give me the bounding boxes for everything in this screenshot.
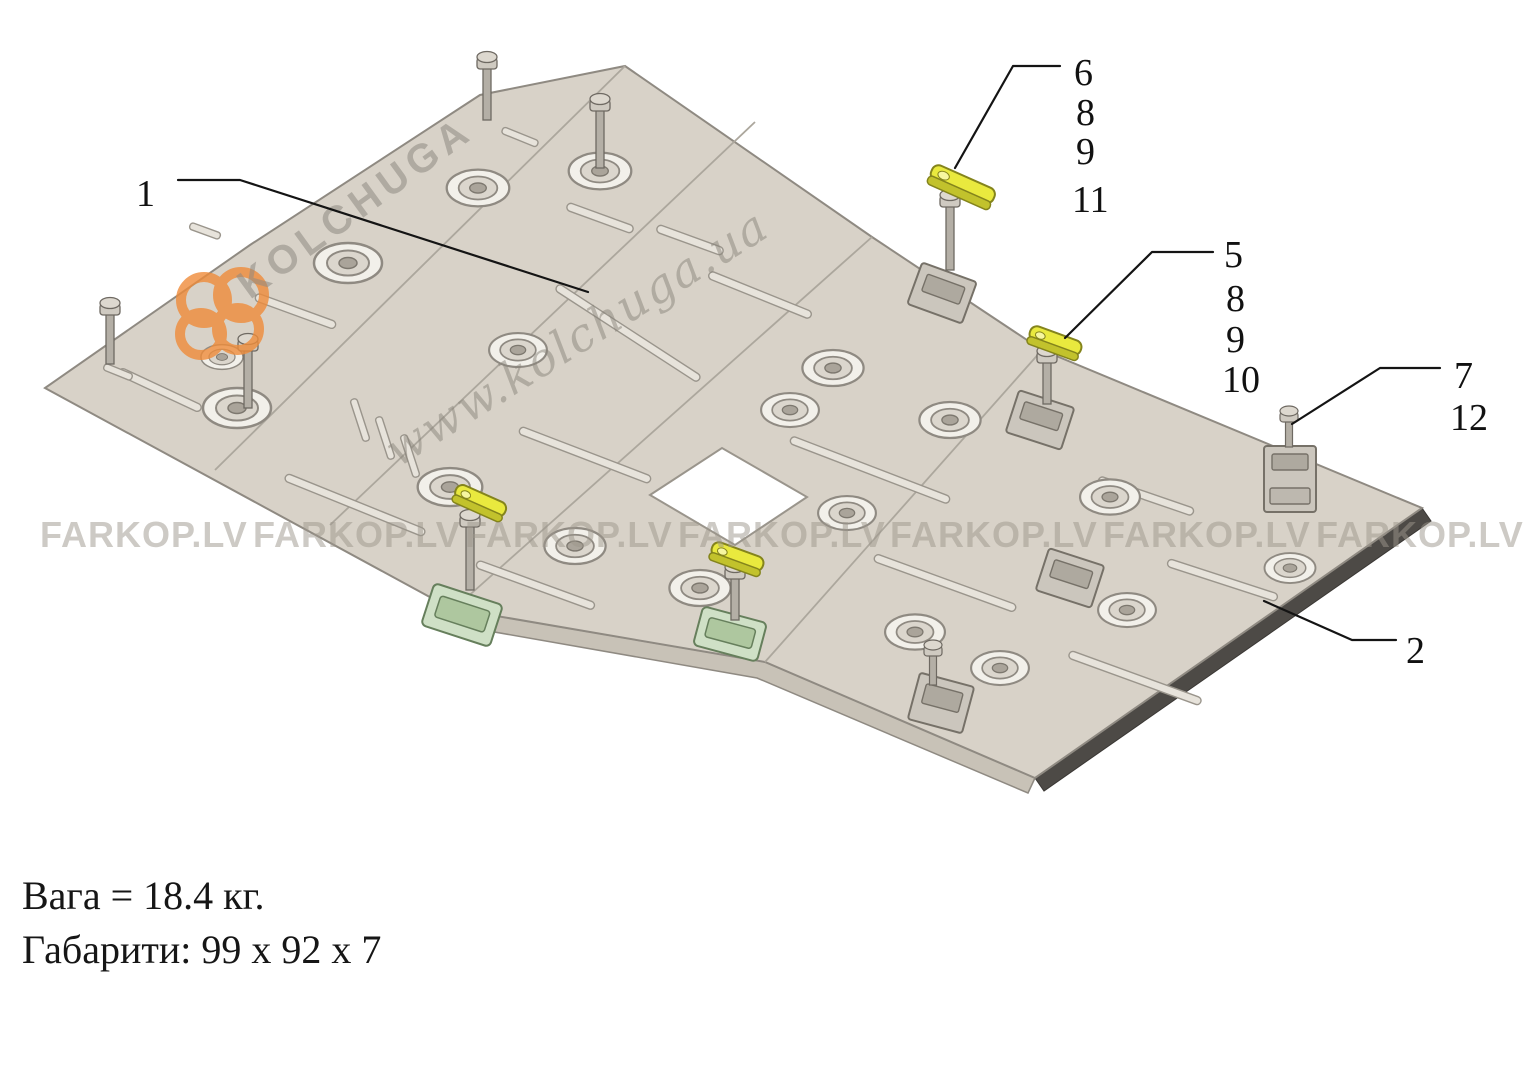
watermark-dealer: FARKOP.LV: [253, 514, 461, 555]
callout-6: 6: [1074, 52, 1093, 94]
watermark-dealer: FARKOP.LV: [1316, 514, 1524, 555]
watermark-dealer: FARKOP.LV: [40, 514, 248, 555]
callout-11: 11: [1072, 179, 1109, 221]
spec-dimensions: Габарити: 99 х 92 х 7: [22, 927, 381, 972]
watermark-dealer: FARKOP.LV: [890, 514, 1098, 555]
callout-7: 7: [1454, 355, 1473, 397]
diagram-page: KOLCHUGA www.kolchuga.ua FARKOP.LV FARKO…: [0, 0, 1524, 1080]
callout-10: 10: [1222, 359, 1260, 401]
callout-12: 12: [1450, 397, 1488, 439]
watermark-dealer: FARKOP.LV: [678, 514, 886, 555]
callout-9a: 9: [1076, 131, 1095, 173]
spec-weight: Вага = 18.4 кг.: [22, 873, 264, 918]
callout-2: 2: [1406, 630, 1425, 672]
callout-9b: 9: [1226, 319, 1245, 361]
metal-bracket: [1264, 446, 1316, 512]
callout-8b: 8: [1226, 278, 1245, 320]
callout-5: 5: [1224, 234, 1243, 276]
skid-plate-diagram: KOLCHUGA www.kolchuga.ua FARKOP.LV FARKO…: [0, 0, 1524, 1080]
callout-1: 1: [136, 173, 155, 215]
watermark-dealer: FARKOP.LV: [465, 514, 673, 555]
callout-8a: 8: [1076, 92, 1095, 134]
watermark-dealer-row: FARKOP.LV FARKOP.LV FARKOP.LV FARKOP.LV …: [40, 514, 1524, 555]
watermark-dealer: FARKOP.LV: [1103, 514, 1311, 555]
